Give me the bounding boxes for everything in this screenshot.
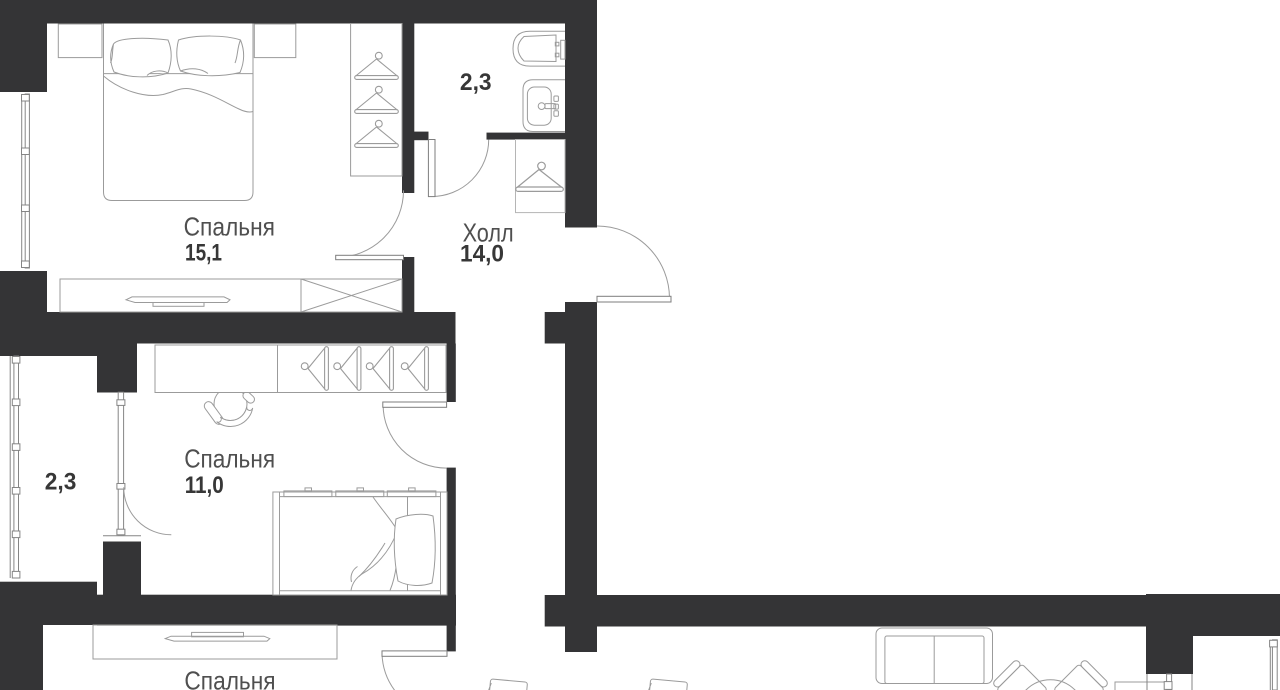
svg-text:15,1: 15,1 — [185, 239, 222, 266]
svg-text:2,3: 2,3 — [460, 69, 492, 96]
svg-text:14,0: 14,0 — [460, 241, 504, 268]
svg-text:11,0: 11,0 — [185, 472, 224, 499]
svg-text:Спальня: Спальня — [184, 444, 275, 474]
svg-text:Спальня: Спальня — [184, 212, 275, 242]
svg-text:Спальня: Спальня — [184, 665, 275, 690]
svg-text:2,3: 2,3 — [45, 469, 77, 496]
